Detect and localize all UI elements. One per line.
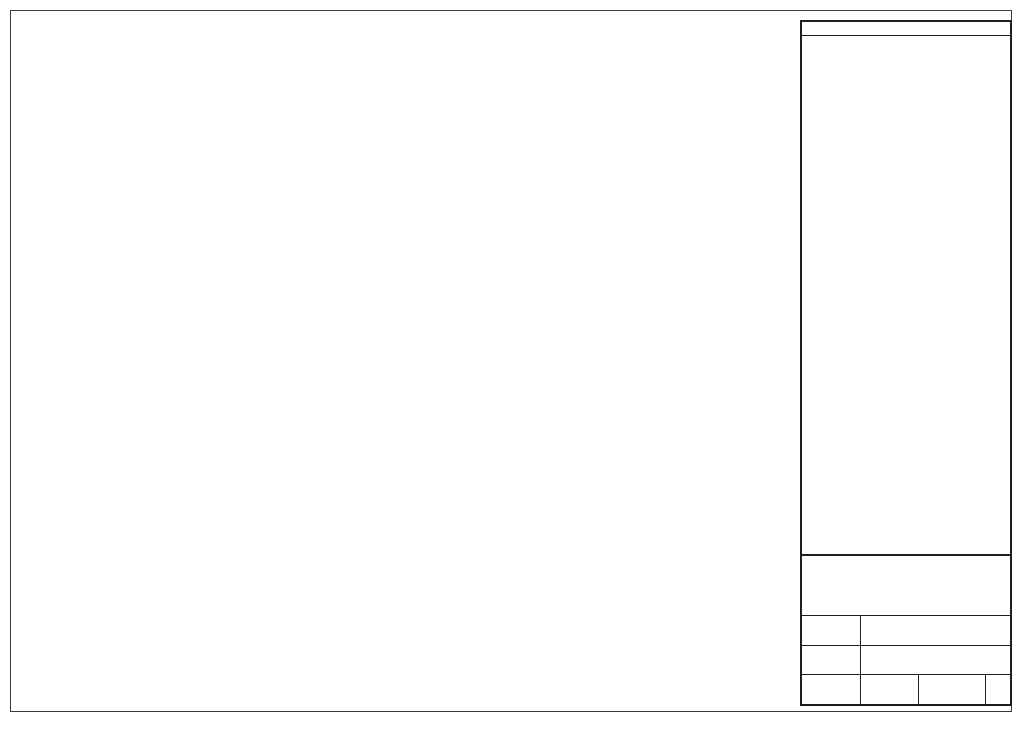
sheet-no-label: [919, 675, 986, 704]
compile-org-value: [861, 616, 1010, 645]
table-row: [802, 675, 1010, 704]
drawing-org-value: [861, 646, 1010, 675]
drawing-org-label: [802, 646, 861, 675]
side-panel: [800, 20, 1012, 706]
map-name-block: [802, 554, 1010, 616]
title-block: [802, 22, 1010, 36]
compile-org-label: [802, 616, 861, 645]
plan-sheet: [0, 0, 1023, 739]
sheet-no-value: [986, 675, 1010, 704]
table-row: [802, 616, 1010, 646]
date-label: [802, 675, 861, 704]
info-table: [802, 616, 1010, 704]
date-value: [861, 675, 919, 704]
legend: [802, 36, 1010, 554]
table-row: [802, 646, 1010, 676]
